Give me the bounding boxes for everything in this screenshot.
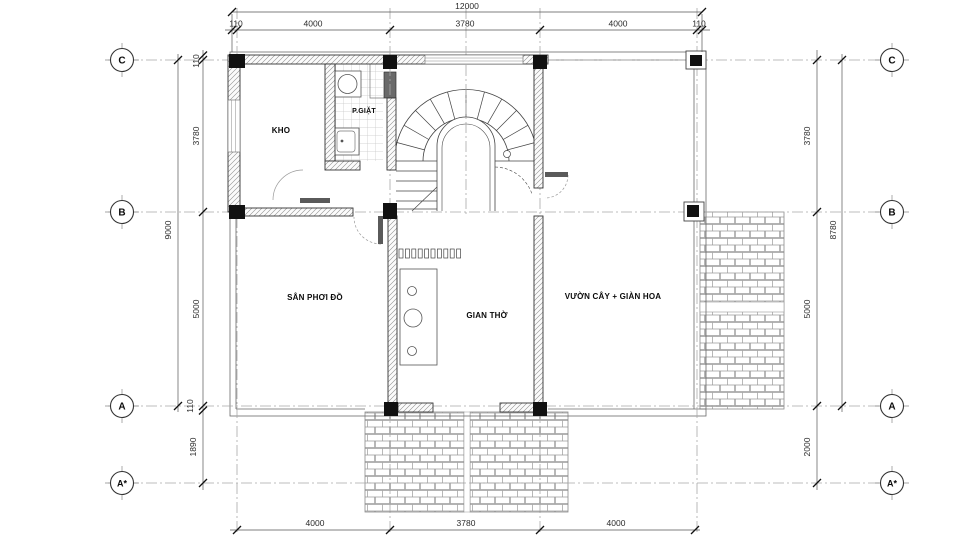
room-label-san-phoi-do: SÂN PHƠI ĐỒ [287,292,343,302]
worship-room-door-leaf [378,216,383,244]
dim-left-overall: 9000 [163,220,173,239]
wall-worship-right [534,216,543,403]
wall-stair-left [387,98,396,170]
dim-bottom-4000-right: 4000 [607,518,626,528]
wall-stub-a-left [398,403,433,412]
stair-hall-door-leaf [545,172,568,177]
floor-plan-canvas: 12000 110 4000 3780 4000 110 4000 3780 4… [0,0,960,540]
altar-screen [399,249,461,258]
brick-patio-right [470,412,568,512]
dim-left-1890: 1890 [188,437,198,456]
wall-grid-b [230,208,353,216]
dim-right-5000: 5000 [802,299,812,318]
bubble-a-left-label: A [118,402,125,413]
altar-table [400,269,437,365]
building-outline [230,52,706,416]
dim-top-4000-left: 4000 [304,19,323,29]
stair-treads-straight [396,171,437,211]
patio-gap [464,412,470,512]
room-label-kho: KHO [272,126,290,135]
column-box-c-right [686,51,706,69]
stair-hall-door-arc [545,175,568,198]
stair-marker-circle [504,151,511,158]
wall-worship-left [388,216,397,403]
window-top [425,55,523,64]
bubble-c-left-label: C [118,56,125,67]
walls [228,55,548,412]
dim-left-110-top: 110 [191,54,201,68]
room-label-vuon-cay: VƯỜN CÂY + GIÀN HOA [565,292,661,301]
bubble-c-right-label: C [888,56,895,67]
dim-top-4000-right: 4000 [609,19,628,29]
dim-bottom-4000-left: 4000 [306,518,325,528]
dim-bottom-3780: 3780 [457,518,476,528]
brick-patio-left [365,412,464,512]
dim-left-3780: 3780 [191,126,201,145]
columns [229,51,706,416]
dim-top-3780: 3780 [456,19,475,29]
brick-strip-divider [700,302,784,312]
dim-left-5000: 5000 [191,299,201,318]
bubble-b-right-label: B [888,208,895,219]
dim-right-2000: 2000 [802,437,812,456]
dim-top-overall: 12000 [455,1,479,11]
corridor-door-arc [273,170,303,200]
wall-laundry-bottom [325,161,360,170]
bubble-astar-right-label: A* [887,479,897,489]
corridor-door-leaf [300,198,330,203]
window-left [228,100,240,152]
dim-right-3780: 3780 [802,126,812,145]
dim-left-110-bottom: 110 [185,399,195,413]
room-label-gian-tho: GIAN THỜ [466,311,507,320]
wall-stub-a-right [500,403,534,412]
bubble-a-right-label: A [888,402,895,413]
wall-kho-laundry [325,64,335,161]
dim-right-overall: 8780 [828,220,838,239]
dim-top-110-left: 110 [229,19,243,29]
bubble-astar-left-label: A* [117,479,127,489]
floor-plan-svg: 12000 110 4000 3780 4000 110 4000 3780 4… [0,0,960,540]
room-label-p-giat: P.GIẶT [352,106,376,115]
bubble-b-left-label: B [118,208,125,219]
dim-top-110-right: 110 [692,19,706,29]
worship-room-door-arc [354,217,381,244]
column-box-b-right [684,202,704,221]
sink-drain [341,140,344,143]
wall-stair-right [534,64,543,188]
